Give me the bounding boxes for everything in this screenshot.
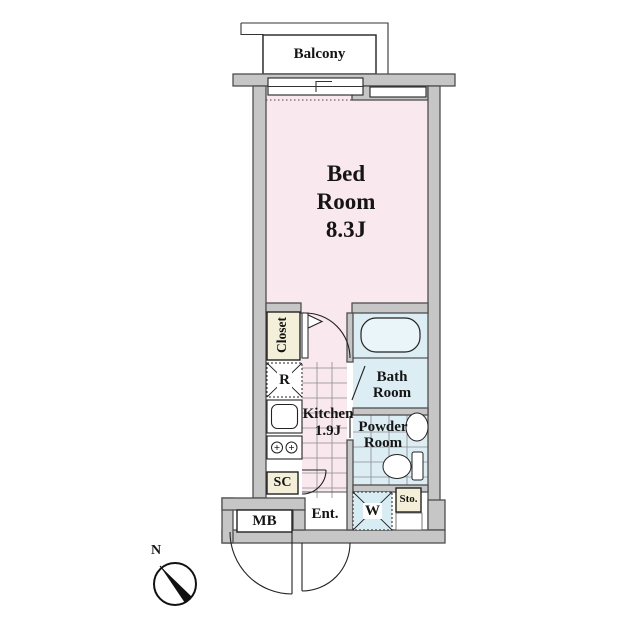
bathroom-label-line2: Room [360, 385, 424, 401]
wall-right [428, 86, 440, 530]
bathroom-label: Bath Room [360, 369, 424, 401]
wall-mb-top [222, 498, 305, 510]
shoe-cabinet-label: SC [267, 475, 298, 490]
powder-room-label: Powder Room [350, 419, 416, 451]
balcony-window [268, 78, 363, 95]
entrance-door [302, 543, 350, 591]
bedroom-label-line1: Bed [285, 160, 407, 188]
bathroom-label-line1: Bath [360, 369, 424, 385]
toilet [383, 452, 423, 480]
bedroom-label: Bed Room 8.3J [285, 160, 407, 244]
powder-room-label-line2: Room [350, 435, 416, 451]
floorplan-canvas: Balcony Bed Room 8.3J Closet R Kitchen 1… [0, 0, 640, 640]
kitchen-size: 1.9J [299, 423, 357, 440]
wall-bedroom-divider-right [352, 303, 428, 313]
floorplan-drawing [0, 0, 640, 640]
bedroom-label-line2: Room [285, 188, 407, 216]
washer-label: W [353, 503, 392, 519]
wall-left [253, 86, 266, 498]
refrigerator-label: R [267, 372, 302, 388]
kitchen-name: Kitchen [299, 406, 357, 423]
kitchen-label: Kitchen 1.9J [299, 406, 357, 440]
bedroom-top-inset [370, 87, 426, 97]
wall-right-bottom [428, 500, 445, 530]
bedroom-size: 8.3J [285, 216, 407, 244]
wall-notch [396, 513, 422, 530]
balcony-label: Balcony [263, 46, 376, 62]
powder-room-label-line1: Powder [350, 419, 416, 435]
storage-label: Sto. [395, 494, 422, 506]
kitchen-stove [267, 436, 302, 459]
compass-north-label: N [147, 543, 165, 558]
closet-label: Closet [275, 311, 291, 359]
compass [154, 563, 196, 605]
entrance-label: Ent. [300, 506, 350, 522]
bathtub [361, 318, 420, 352]
kitchen-sink [267, 400, 302, 433]
hall-floor [301, 303, 352, 362]
meter-box-label: MB [237, 513, 292, 529]
